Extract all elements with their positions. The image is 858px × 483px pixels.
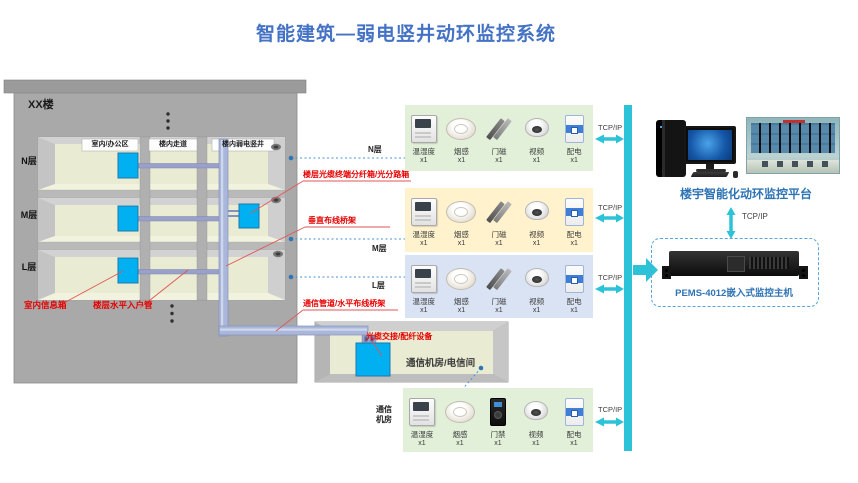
rack-host-device: [669, 251, 799, 276]
device-label: 烟感: [454, 229, 469, 240]
device-count: x1: [495, 157, 502, 164]
row-tag-m: M层: [372, 243, 387, 254]
video-camera-icon: [524, 268, 550, 290]
row-tag-comm-room: 通信机房: [374, 405, 394, 425]
tcpip-label-2: TCP/IP: [598, 203, 622, 212]
device-cell: 配电x1: [557, 114, 591, 164]
device-count: x1: [570, 157, 577, 164]
indoor-info-box-n: [118, 153, 138, 178]
device-count: x1: [458, 157, 465, 164]
building-structure: [4, 80, 306, 383]
device-label: 温湿度: [413, 146, 436, 157]
device-cell: 门磁x1: [482, 114, 516, 164]
building-floor-label-l: L层: [15, 260, 43, 273]
device-cell: 配电x1: [557, 264, 591, 314]
power-breaker-icon: [565, 115, 584, 143]
device-count: x1: [418, 440, 425, 447]
smoke-sensor-icon: [446, 118, 476, 140]
comm-duct-label: 通信管道/水平布线桥架: [303, 298, 385, 309]
temp-humidity-icon: [411, 198, 437, 226]
device-label: 温湿度: [413, 229, 436, 240]
device-count: x1: [570, 440, 577, 447]
platform-host-arrow: [727, 207, 736, 239]
device-label: 烟感: [454, 296, 469, 307]
device-count: x1: [420, 307, 427, 314]
device-count: x1: [533, 307, 540, 314]
smoke-sensor-icon: [446, 201, 476, 223]
keyboard: [691, 172, 730, 177]
device-label: 门磁: [491, 146, 506, 157]
device-cell: 烟感x1: [444, 197, 478, 247]
power-breaker-icon: [565, 198, 584, 226]
telecom-room-label: 通信机房/电信间: [406, 355, 475, 369]
smoke-sensor-icon: [446, 268, 476, 290]
device-cell: 温湿度x1: [405, 397, 439, 447]
video-wall-banner: [783, 120, 805, 123]
tcpip-label-platform: TCP/IP: [742, 212, 768, 221]
device-cell: 门磁x1: [482, 197, 516, 247]
device-cell: 视频x1: [520, 264, 554, 314]
device-cell: 温湿度x1: [407, 264, 441, 314]
rack-ear-left: [662, 266, 671, 279]
device-cell: 门磁x1: [482, 264, 516, 314]
device-count: x1: [570, 240, 577, 247]
device-count: x1: [494, 440, 501, 447]
indoor-info-box-label: 室内信息箱: [24, 299, 67, 311]
video-camera-icon: [524, 118, 550, 140]
device-label: 烟感: [453, 429, 468, 440]
indoor-info-box-m: [118, 206, 138, 231]
page-title: 智能建筑—弱电竖井动环监控系统: [0, 19, 812, 46]
control-room-desks: [747, 160, 839, 173]
device-cell: 烟感x1: [444, 264, 478, 314]
power-breaker-icon: [565, 265, 584, 293]
fiber-terminal-box-label: 楼层光缆终端分纤箱/光分路箱: [303, 169, 409, 180]
vertical-tray-label: 垂直布线桥架: [308, 215, 356, 226]
temp-humidity-icon: [411, 115, 437, 143]
tcpip-label-3: TCP/IP: [598, 273, 622, 282]
door-magnet-icon: [486, 116, 512, 142]
zone-header-office: 室内/办公区: [82, 139, 138, 151]
fiber-cross-equipment-box: [356, 343, 390, 376]
device-cell: 配电x1: [557, 397, 591, 447]
zone-header-shaft: 楼内弱电竖井: [212, 139, 274, 151]
device-count: x1: [570, 307, 577, 314]
device-count: x1: [420, 157, 427, 164]
fiber-cross-equipment-label: 光缆交接/配纤设备: [366, 331, 432, 342]
video-wall-screens: [751, 123, 835, 153]
mouse: [733, 171, 738, 178]
power-breaker-icon: [565, 398, 584, 426]
video-camera-icon: [523, 401, 549, 423]
control-room-photo: [746, 117, 840, 174]
device-cell: 视频x1: [520, 114, 554, 164]
device-row-floor-n: 温湿度x1 烟感x1 门磁x1 视频x1 配电x1: [405, 105, 593, 171]
device-label: 温湿度: [413, 296, 436, 307]
row-tag-n: N层: [368, 144, 382, 155]
device-label: 配电: [567, 229, 582, 240]
device-cell: 门禁x1: [481, 397, 515, 447]
access-control-icon: [490, 398, 506, 426]
device-label: 配电: [567, 429, 582, 440]
desktop-monitor: [684, 126, 736, 164]
temp-humidity-icon: [409, 398, 435, 426]
monitor-screen: [688, 130, 732, 160]
device-label: 配电: [567, 146, 582, 157]
device-cell: 烟感x1: [443, 397, 477, 447]
vertical-riser-pipe: [219, 139, 228, 336]
slide-canvas: 智能建筑—弱电竖井动环监控系统 XX楼 室内/办公区 楼内走道 楼内弱电竖井 N…: [0, 0, 858, 483]
tcpip-label-1: TCP/IP: [598, 123, 622, 132]
device-label: 烟感: [454, 146, 469, 157]
device-count: x1: [533, 240, 540, 247]
device-count: x1: [532, 440, 539, 447]
device-label: 配电: [567, 296, 582, 307]
device-label: 视频: [529, 429, 544, 440]
desktop-tower: [656, 120, 686, 177]
device-label: 视频: [529, 296, 544, 307]
video-camera-icon: [524, 201, 550, 223]
device-row-floor-m: 温湿度x1 烟感x1 门磁x1 视频x1 配电x1: [405, 188, 593, 252]
device-count: x1: [458, 307, 465, 314]
zone-header-corridor: 楼内走道: [149, 139, 197, 151]
device-count: x1: [495, 240, 502, 247]
device-cell: 视频x1: [520, 197, 554, 247]
device-label: 门磁: [491, 229, 506, 240]
host-label: PEMS-4012嵌入式监控主机: [651, 285, 817, 299]
device-cell: 温湿度x1: [407, 197, 441, 247]
device-row-floor-l: 温湿度x1 烟感x1 门磁x1 视频x1 配电x1: [405, 255, 593, 318]
device-count: x1: [456, 440, 463, 447]
device-label: 温湿度: [411, 429, 434, 440]
tcpip-label-4: TCP/IP: [598, 405, 622, 414]
row-tag-l: L层: [372, 280, 385, 291]
device-cell: 配电x1: [557, 197, 591, 247]
smoke-sensor-icon: [445, 401, 475, 423]
device-label: 视频: [529, 229, 544, 240]
entry-pipe-label: 楼层水平入户管: [93, 299, 153, 311]
device-count: x1: [533, 157, 540, 164]
device-cell: 温湿度x1: [407, 114, 441, 164]
device-cell: 烟感x1: [444, 114, 478, 164]
device-row-comm-room: 温湿度x1 烟感x1 门禁x1 视频x1 配电x1: [403, 388, 593, 452]
device-label: 门禁: [491, 429, 506, 440]
device-count: x1: [458, 240, 465, 247]
door-magnet-icon: [486, 199, 512, 225]
building-name: XX楼: [28, 96, 54, 112]
device-label: 视频: [529, 146, 544, 157]
rack-ear-right: [799, 266, 808, 279]
building-floor-label-m: M层: [15, 208, 43, 221]
platform-label: 楼宇智能化动环监控平台: [646, 185, 846, 202]
fiber-terminal-box: [239, 204, 259, 228]
door-magnet-icon: [486, 266, 512, 292]
device-label: 门磁: [491, 296, 506, 307]
device-count: x1: [420, 240, 427, 247]
indoor-info-box-l: [118, 258, 138, 283]
device-cell: 视频x1: [519, 397, 553, 447]
building-floor-label-n: N层: [15, 154, 43, 167]
temp-humidity-icon: [411, 265, 437, 293]
device-count: x1: [495, 307, 502, 314]
